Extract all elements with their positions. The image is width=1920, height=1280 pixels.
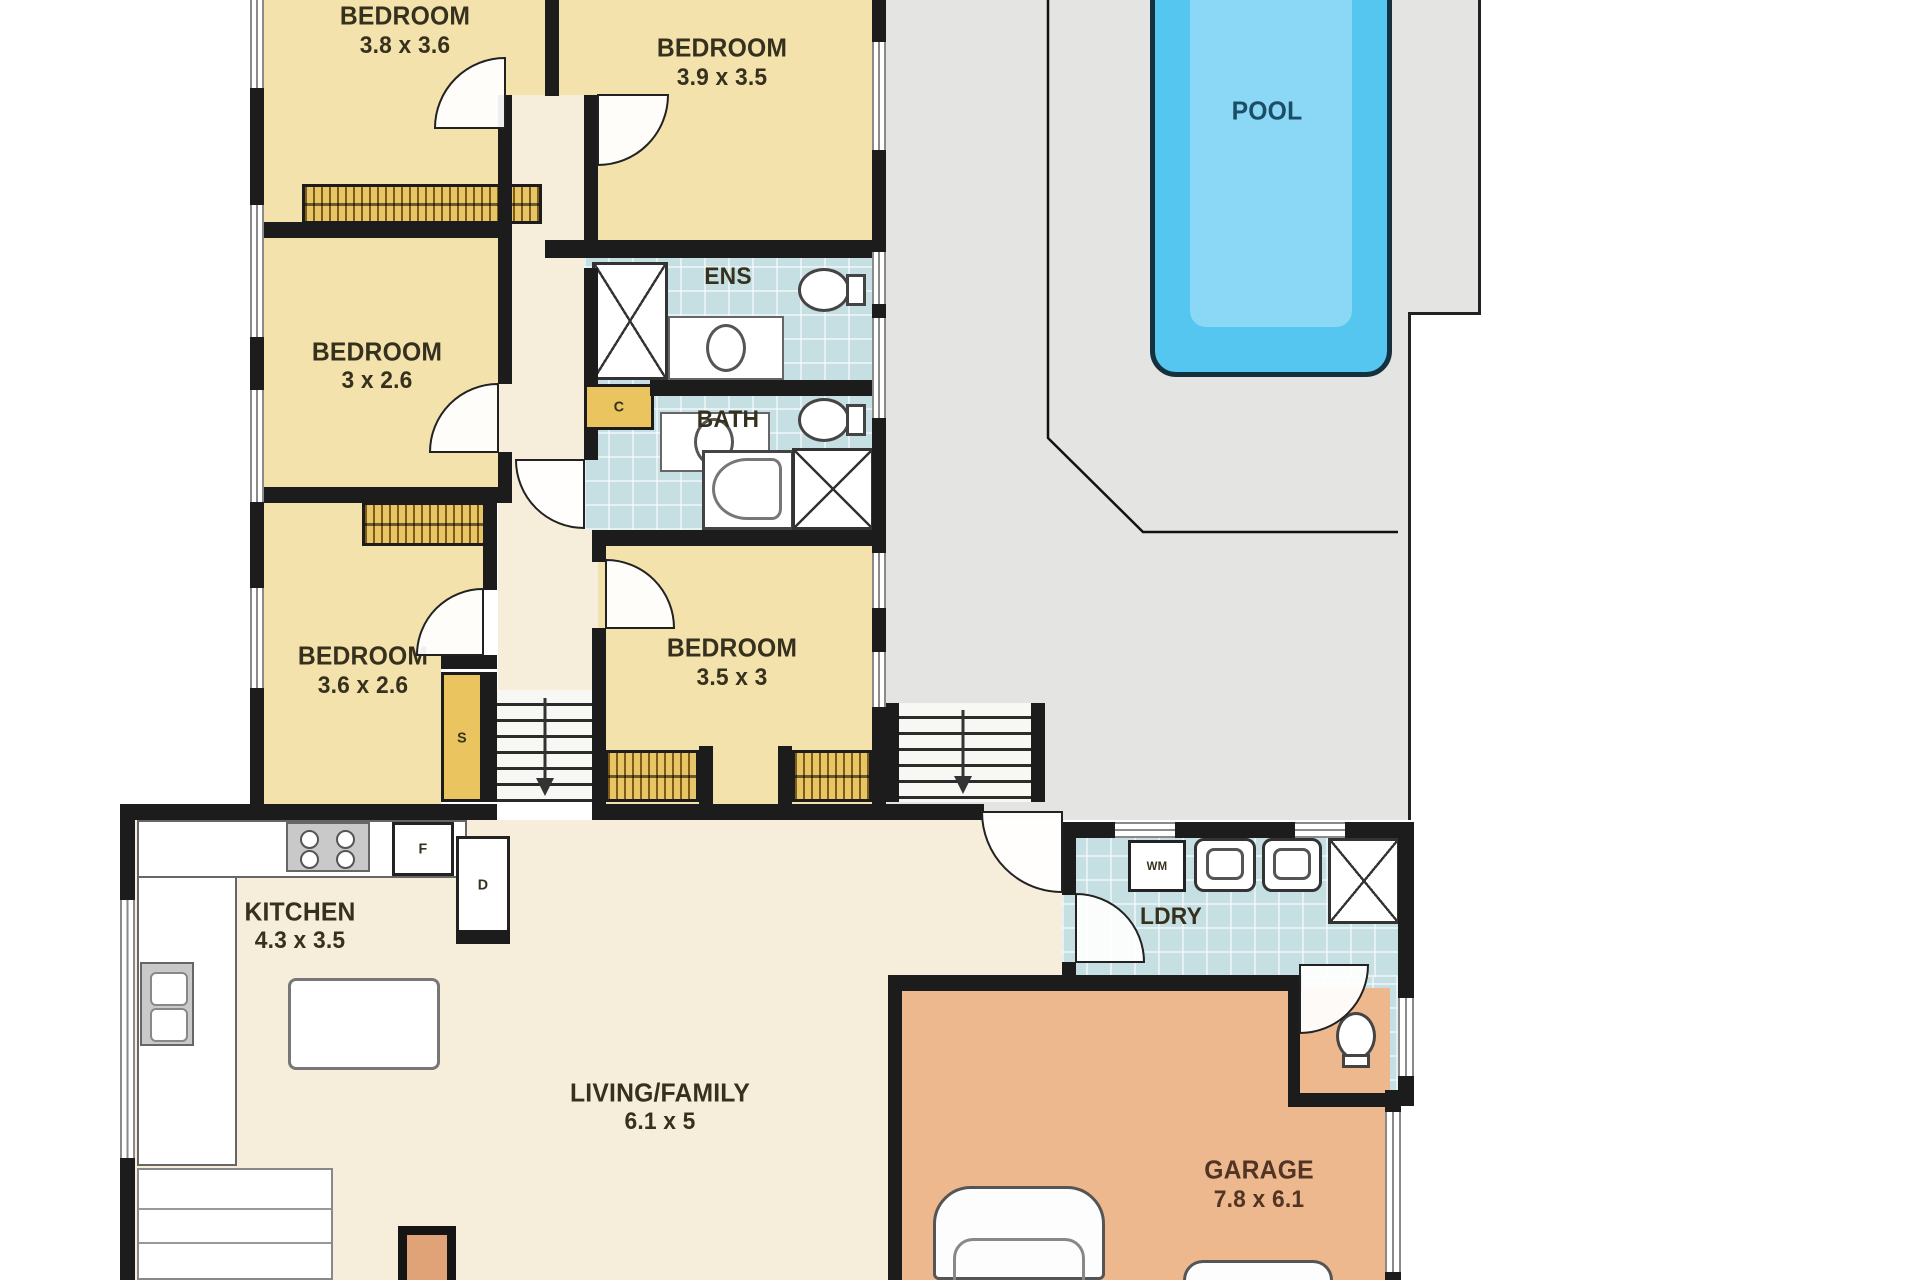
ensuite-label: ENS xyxy=(704,263,751,291)
stairs-internal xyxy=(497,690,592,802)
stove-burner xyxy=(336,830,355,849)
bedroom5-wardrobe-right xyxy=(792,750,872,802)
bath-toilet-tank xyxy=(846,404,866,436)
cupboard-s-label: S xyxy=(457,730,467,747)
bathroom-label: BATH xyxy=(697,406,759,434)
wardrobe-stub-right xyxy=(778,746,792,804)
window xyxy=(1398,998,1414,1076)
living-dims: 6.1 x 5 xyxy=(624,1108,695,1136)
wall-living-top-right xyxy=(872,804,984,820)
ensuite-toilet-bowl xyxy=(798,268,850,312)
bedroom5-wardrobe-left xyxy=(605,750,699,802)
bedroom2-label: BEDROOM xyxy=(657,33,787,64)
washing-machine-label: WM xyxy=(1147,859,1168,873)
window xyxy=(872,252,886,304)
kitchen-label: KITCHEN xyxy=(244,897,355,928)
wall-bed1-bed2-divider xyxy=(545,0,559,96)
bedroom4-wardrobe xyxy=(362,502,494,546)
wardrobe-shelf-line xyxy=(608,775,696,778)
wardrobe-shelf-line xyxy=(795,775,869,778)
bedroom5-dims: 3.5 x 3 xyxy=(696,664,767,692)
wall-hall-right-upper xyxy=(584,95,598,240)
window xyxy=(120,900,135,1158)
window xyxy=(872,318,886,418)
pantry-label: D xyxy=(478,877,488,894)
stairs-external xyxy=(899,703,1031,802)
window xyxy=(872,652,886,707)
floor-plan: POOL C S xyxy=(0,0,1920,1280)
bath-shower xyxy=(792,448,874,530)
wardrobe-shelf-line xyxy=(365,523,491,526)
wall-linen-right xyxy=(483,672,497,802)
laundry-shower xyxy=(1328,838,1400,924)
fireplace xyxy=(398,1226,456,1280)
garage-label: GARAGE xyxy=(1204,1155,1314,1186)
wall-bed1-bottom xyxy=(250,222,512,238)
wall-wc-bottom xyxy=(1288,1093,1400,1107)
bedroom5-label: BEDROOM xyxy=(667,633,797,664)
wall-garage-top xyxy=(888,975,1302,991)
pool-label: POOL xyxy=(1232,96,1303,127)
stove-burner xyxy=(300,850,319,869)
bedroom1-label: BEDROOM xyxy=(340,1,470,32)
wall-ens-left xyxy=(584,268,598,384)
kitchen-island xyxy=(288,978,440,1070)
pantry-wall-stub xyxy=(456,930,510,944)
bedroom2-dims: 3.9 x 3.5 xyxy=(677,64,767,92)
cupboard-c-label: C xyxy=(614,399,624,416)
bedroom4-label: BEDROOM xyxy=(298,641,428,672)
living-label: LIVING/FAMILY xyxy=(570,1078,750,1109)
window xyxy=(250,0,264,88)
wall-living-left-lower xyxy=(120,1158,135,1280)
bedroom3-dims: 3 x 2.6 xyxy=(341,367,412,395)
stove-burner xyxy=(300,830,319,849)
window xyxy=(1295,822,1345,838)
wall-bed2-bottom xyxy=(545,240,886,258)
kitchen-dims: 4.3 x 3.5 xyxy=(255,927,345,955)
ensuite-basin xyxy=(706,324,746,372)
wall-bed4-right-upper xyxy=(483,503,497,590)
garage-dims: 7.8 x 6.1 xyxy=(1214,1186,1304,1214)
wall-bath-bottom xyxy=(592,530,886,546)
ensuite-toilet-tank xyxy=(846,274,866,306)
pool-water xyxy=(1190,0,1352,327)
fridge-label: F xyxy=(419,841,428,858)
bedroom3-label: BEDROOM xyxy=(312,337,442,368)
wall-bed5-left-lower xyxy=(592,628,606,804)
kitchen-stove xyxy=(286,822,370,872)
wall-ens-bath-divider xyxy=(650,380,886,396)
sink-bowl xyxy=(150,972,188,1006)
window xyxy=(250,390,264,502)
stairs-external-rail-right xyxy=(1031,703,1045,802)
laundry-label: LDRY xyxy=(1140,903,1202,931)
cabinetry-alcove xyxy=(137,1168,333,1280)
shelf-line xyxy=(139,1242,331,1244)
window xyxy=(250,588,264,688)
wall-wc-left xyxy=(1288,991,1300,1105)
bedroom1-dims: 3.8 x 3.6 xyxy=(360,32,450,60)
bedroom4-dims: 3.6 x 2.6 xyxy=(318,672,408,700)
wardrobe-stub-left xyxy=(699,746,713,804)
stairs-external-rail-left xyxy=(885,703,899,802)
wall-bed5-left-upper xyxy=(592,530,606,562)
wall-living-left-upper xyxy=(120,804,135,902)
window xyxy=(250,205,264,337)
wc-toilet-bowl xyxy=(1336,1012,1376,1060)
window xyxy=(872,553,886,608)
bath-toilet-bowl xyxy=(798,398,850,442)
laundry-tub-2-bowl xyxy=(1273,848,1311,880)
window xyxy=(872,42,886,150)
shelf-line xyxy=(139,1208,331,1210)
wc-toilet-tank xyxy=(1342,1054,1370,1068)
stove-burner xyxy=(336,850,355,869)
kitchen-sink xyxy=(140,962,194,1046)
wall-upper-block-bottom-left xyxy=(250,804,497,820)
bathtub-inner xyxy=(712,458,782,520)
car-2-body xyxy=(1183,1260,1333,1280)
wall-hall-left-upper xyxy=(498,95,512,384)
patio-step-edge xyxy=(1408,312,1481,315)
sink-bowl xyxy=(150,1008,188,1042)
wall-bath-left-upper xyxy=(584,430,598,460)
wall-kitchen-top-left xyxy=(120,804,254,820)
wall-garage-left xyxy=(888,975,902,1280)
car-1-windshield xyxy=(953,1238,1085,1280)
window xyxy=(1385,1112,1401,1272)
window xyxy=(1115,822,1175,838)
ensuite-shower xyxy=(592,262,668,380)
laundry-tub-1-bowl xyxy=(1206,848,1244,880)
wall-laundry-left-upper xyxy=(1062,835,1076,895)
wall-upper-block-bottom-right xyxy=(592,804,886,820)
wall-bed3-bottom xyxy=(250,487,506,503)
wall-bed4-stub xyxy=(441,655,497,669)
